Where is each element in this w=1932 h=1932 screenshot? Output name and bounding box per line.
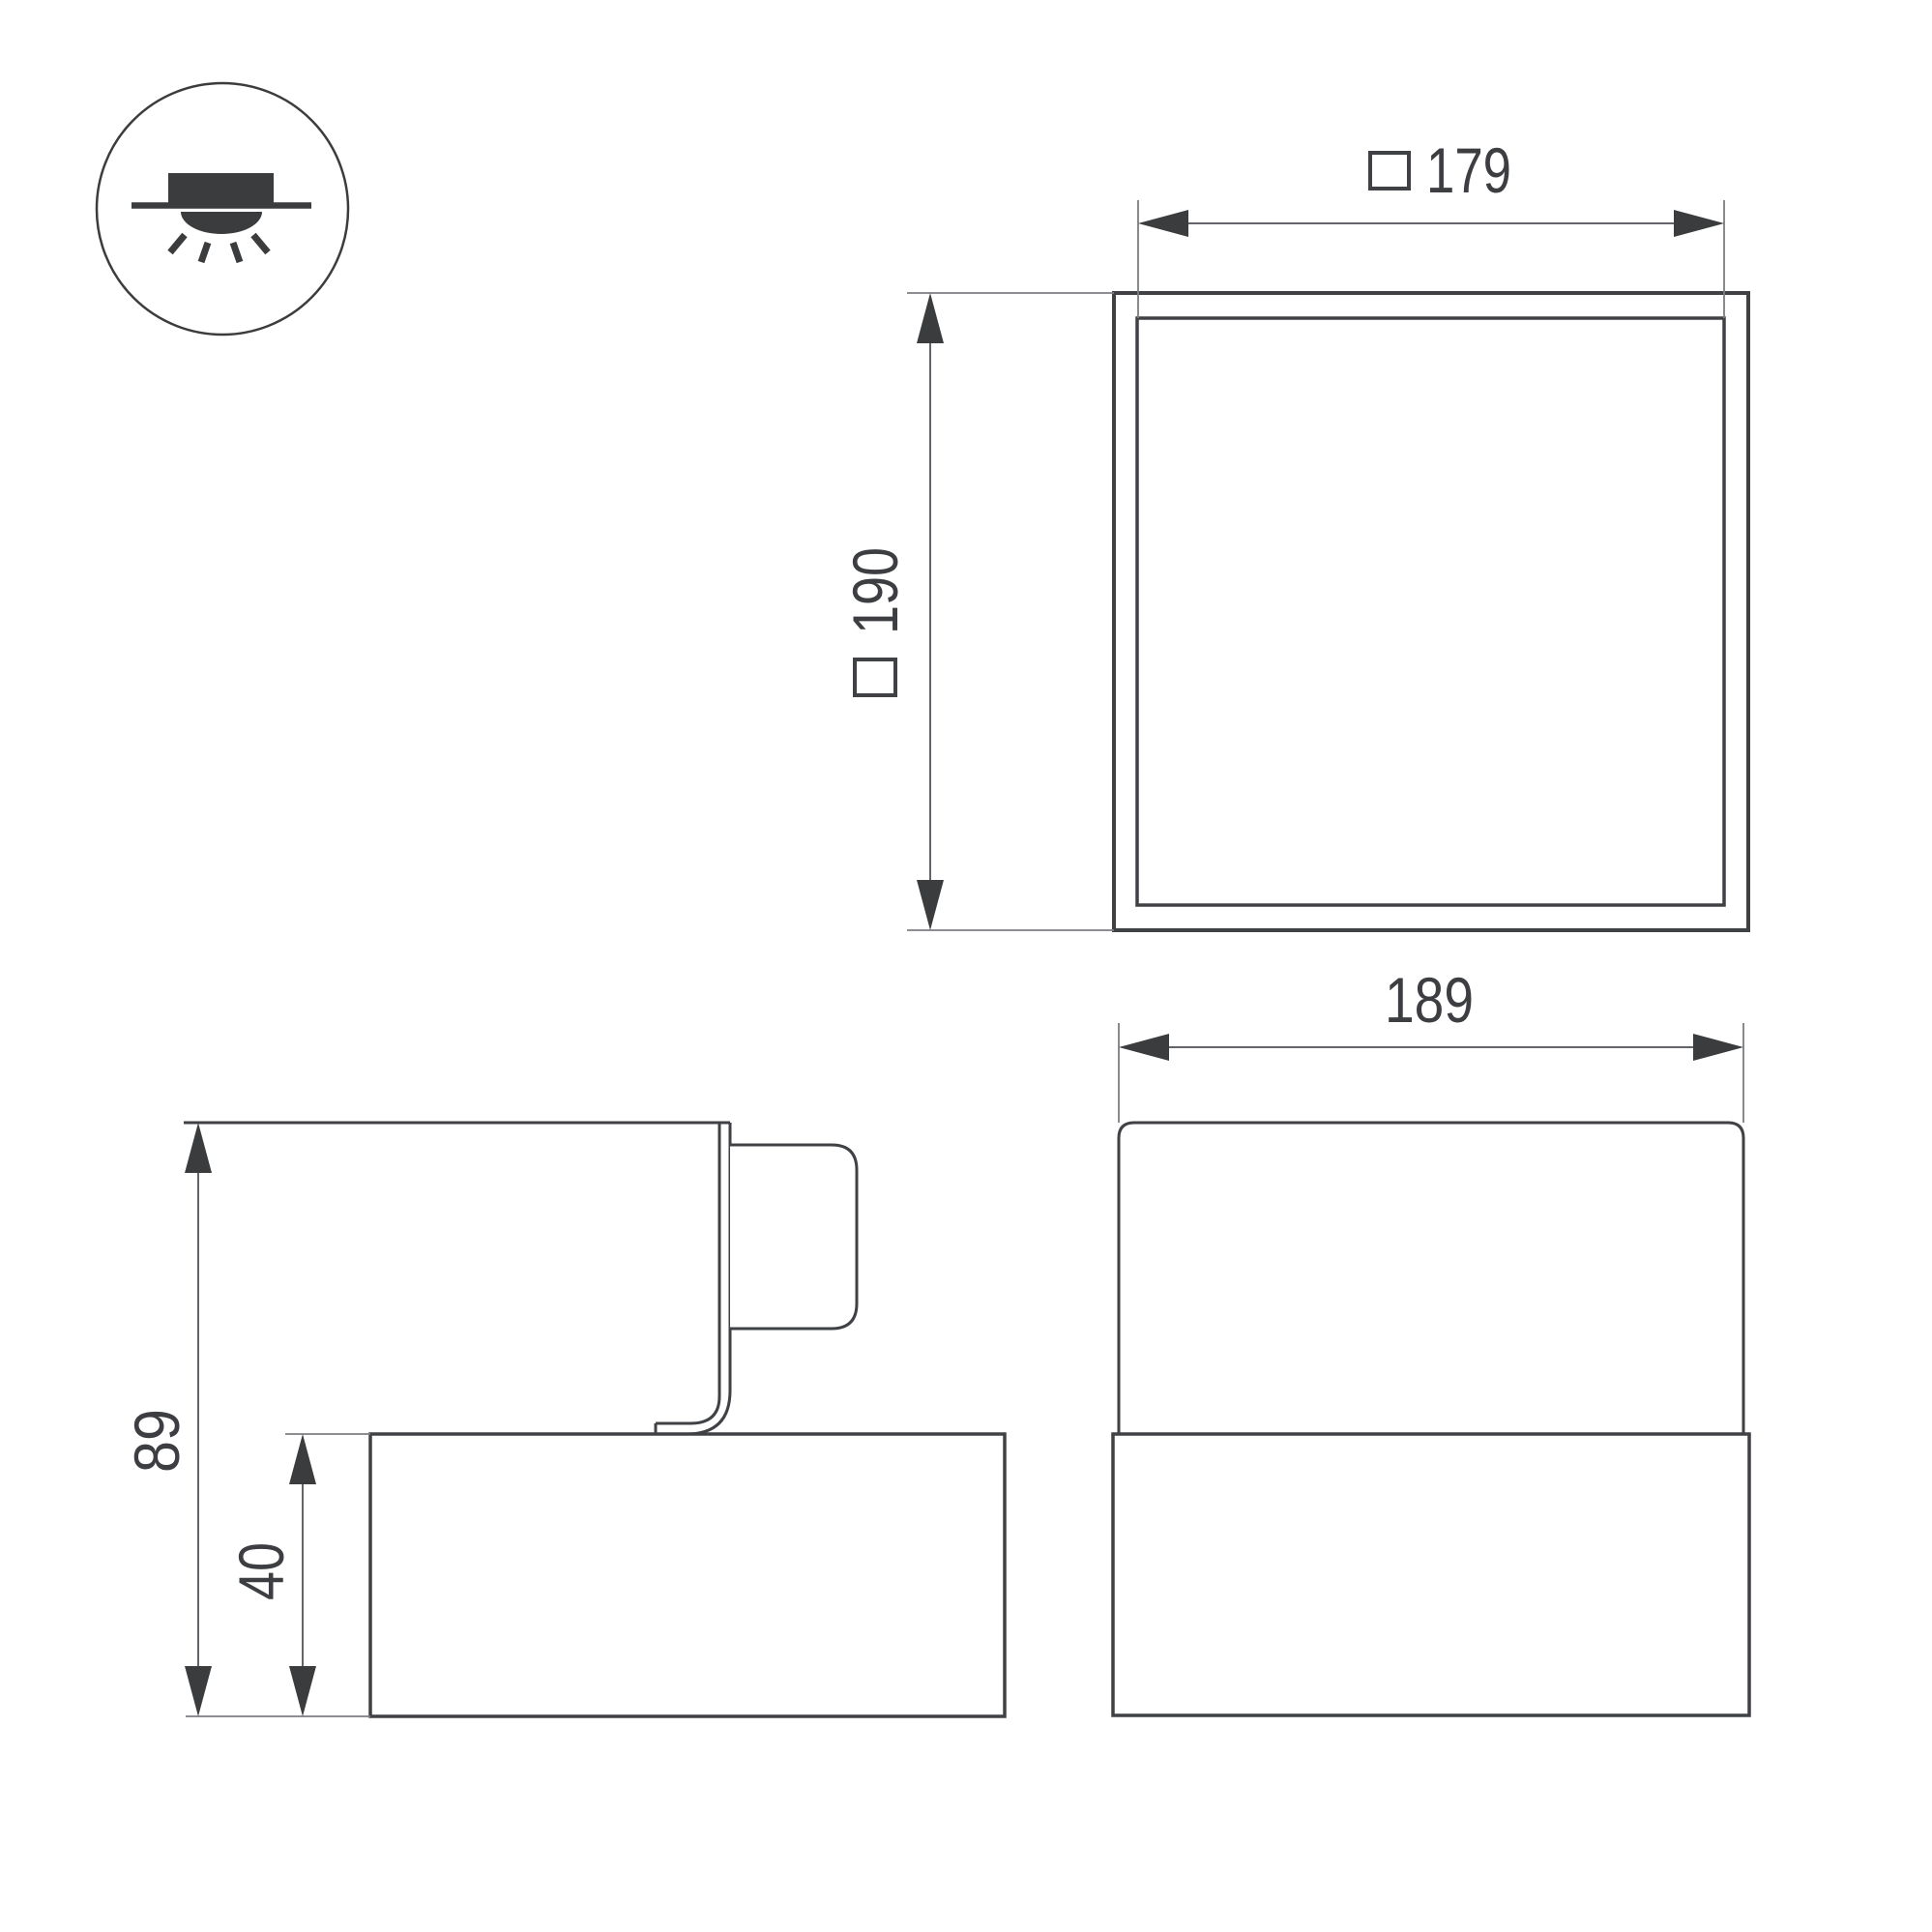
plan-height-value: 190	[839, 547, 911, 634]
arrow-right-icon	[1693, 1034, 1743, 1061]
side-total-height-value: 89	[121, 1409, 192, 1473]
arrow-up-icon	[289, 1434, 316, 1484]
front-base-body	[1113, 1434, 1749, 1715]
dimension-side-total-height: 89	[121, 1123, 370, 1716]
arrow-left-icon	[1138, 210, 1188, 237]
arrow-right-icon	[1674, 210, 1724, 237]
front-view: 189	[1113, 964, 1749, 1715]
arrow-up-icon	[185, 1123, 212, 1173]
mounting-bracket-inner-edge	[656, 1123, 719, 1423]
dimension-plan-height: 190	[839, 293, 1114, 930]
dimension-front-width: 189	[1119, 964, 1743, 1123]
driver-connector-box	[730, 1145, 857, 1329]
dimension-side-base-height: 40	[225, 1434, 370, 1716]
arrow-down-icon	[289, 1666, 316, 1716]
icon-housing	[168, 173, 274, 204]
side-base-body	[370, 1434, 1005, 1716]
side-base-height-value: 40	[225, 1542, 297, 1600]
icon-circle-border	[97, 83, 348, 335]
plan-inner-opening	[1137, 318, 1724, 905]
plan-width-value: 179	[1426, 134, 1511, 206]
arrow-down-icon	[917, 880, 944, 930]
arrow-up-icon	[917, 293, 944, 343]
technical-drawing-page: 179 190 189	[0, 0, 1932, 1932]
dimension-plan-width: 179	[1138, 134, 1724, 318]
recessed-ceiling-light-icon	[97, 83, 348, 335]
side-view: 89 40	[121, 1123, 1005, 1716]
icon-light-rays	[170, 235, 268, 262]
arrow-left-icon	[1119, 1034, 1169, 1061]
luminaire-dimension-drawing: 179 190 189	[0, 0, 1932, 1932]
arrow-down-icon	[185, 1666, 212, 1716]
front-width-value: 189	[1385, 964, 1474, 1036]
square-dimension-symbol	[1370, 153, 1409, 189]
plan-outer-body	[1114, 293, 1748, 930]
plan-view: 179 190	[839, 134, 1748, 930]
square-dimension-symbol	[855, 659, 895, 695]
icon-lamp-dome	[181, 212, 262, 234]
front-head-body	[1119, 1123, 1743, 1434]
